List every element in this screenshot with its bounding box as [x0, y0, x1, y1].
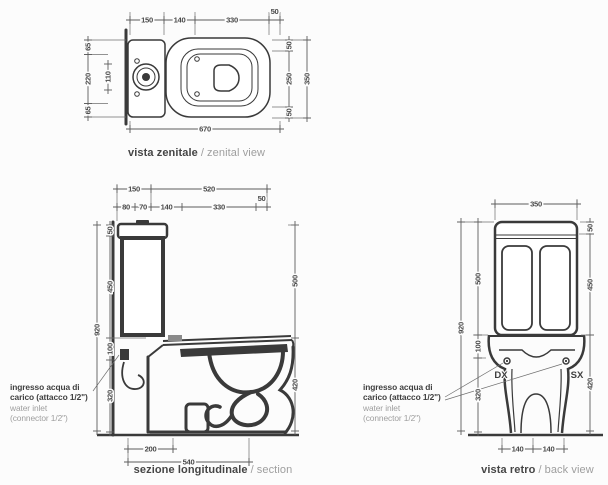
caption-section-italian: sezione longitudinale: [134, 464, 248, 476]
technical-drawing: 150 140 330 50 670 65 220 65 110 50 250 …: [0, 0, 608, 485]
caption-zenital-view: vista zenitale/zenital view: [128, 147, 265, 159]
dim-zenital-total-depth: 670: [199, 125, 211, 134]
inlet-label-en-line1: water inlet: [10, 403, 88, 413]
caption-back-view: vista retro/back view: [455, 464, 608, 476]
dim-zenital-button-offset: 110: [104, 71, 113, 82]
caption-zenital-english: zenital view: [207, 147, 265, 159]
inlet-label-it-line2: carico (attacco 1/2"): [10, 392, 88, 402]
dim-retro-left-0: 500: [474, 273, 483, 285]
dim-section-row2-4: 50: [258, 194, 266, 203]
bowl-inner-cut: [209, 351, 283, 392]
dim-zenital-top-0: 150: [141, 16, 153, 25]
dim-zenital-top-3: 50: [271, 7, 279, 16]
section-view-drawing: [93, 220, 299, 435]
dim-retro-right-1: 450: [586, 279, 595, 291]
label-dx: DX: [494, 370, 508, 381]
dim-zenital-left-1: 220: [84, 73, 93, 85]
dim-section-total-height: 920: [93, 324, 102, 336]
cistern-lid: [118, 224, 167, 238]
dim-retro-right-2: 420: [586, 378, 595, 390]
rim-section-cut: [180, 344, 288, 357]
inlet-label-en-line1: water inlet: [363, 403, 441, 413]
dim-section-left-1: 450: [106, 281, 115, 293]
dim-section-row1-1: 520: [203, 185, 215, 194]
float-pipe: [122, 362, 144, 389]
inlet-hole-dx-center: [506, 360, 508, 362]
dim-zenital-total-width: 350: [303, 73, 312, 85]
inlet-valve: [120, 349, 129, 360]
back-view-drawing: DX SX: [445, 222, 603, 435]
water-inlet-label-retro: ingresso acqua di carico (attacco 1/2") …: [363, 382, 441, 424]
dim-zenital-top-2: 330: [226, 16, 238, 25]
dim-section-left-3: 320: [106, 390, 115, 402]
technical-sheet-page: 150 140 330 50 670 65 220 65 110 50 250 …: [0, 0, 608, 485]
dim-section-bottom-0: 200: [145, 445, 157, 454]
cistern-body-cut: [122, 238, 163, 335]
dim-retro-width: 350: [530, 200, 542, 209]
inlet-label-it-line1: ingresso acqua di: [10, 382, 88, 392]
caption-section-english: section: [257, 464, 293, 476]
dim-retro-right-0: 50: [586, 224, 595, 232]
pedestal-inner-right: [558, 369, 561, 432]
caption-separator: /: [251, 464, 254, 476]
caption-retro-english: back view: [545, 464, 594, 476]
bowl-back-shelf: [499, 350, 575, 357]
inlet-label-it-line1: ingresso acqua di: [363, 382, 441, 392]
dim-retro-bottom-1: 140: [543, 445, 555, 454]
seat-hinge: [168, 335, 182, 341]
dim-zenital-top-1: 140: [174, 16, 186, 25]
bowl-back-top: [148, 345, 163, 357]
seat-outline: [166, 38, 270, 117]
dim-section-right-1: 420: [291, 379, 300, 391]
dim-retro-left-2: 320: [474, 389, 483, 401]
inlet-label-it-line2: carico (attacco 1/2"): [363, 392, 441, 402]
dim-zenital-left-0: 65: [84, 42, 93, 51]
dim-section-row2-0: 80: [122, 203, 130, 212]
dim-zenital-left-2: 65: [84, 106, 93, 115]
dim-retro-total-height: 920: [457, 322, 466, 334]
zenital-view-drawing: [126, 30, 270, 124]
pedestal-arch: [521, 394, 551, 433]
inlet-label-en-line2: (connector 1/2"): [363, 413, 441, 423]
dim-section-left-2: 100: [106, 343, 115, 355]
flush-button: [142, 73, 150, 81]
dim-section-row2-1: 70: [139, 203, 147, 212]
dim-retro-left-1: 100: [474, 341, 483, 353]
dim-section-row2-2: 140: [161, 203, 173, 212]
dim-section-row1-0: 150: [128, 185, 140, 194]
water-inlet-label-section: ingresso acqua di carico (attacco 1/2") …: [10, 382, 88, 424]
trap-curve: [232, 392, 267, 425]
dim-retro-bottom-0: 140: [512, 445, 524, 454]
inlet-label-en-line2: (connector 1/2"): [10, 413, 88, 423]
flush-button-side: [136, 220, 149, 225]
caption-separator: /: [201, 147, 204, 159]
dim-section-left-0: 50: [106, 227, 115, 235]
dim-zenital-right-1: 250: [285, 73, 294, 85]
label-sx: SX: [571, 370, 584, 381]
caption-separator: /: [538, 464, 541, 476]
dim-section-right-0: 500: [291, 275, 300, 287]
inlet-hole-sx-center: [565, 360, 567, 362]
dim-zenital-right-0: 50: [285, 42, 294, 50]
caption-zenital-italian: vista zenitale: [128, 147, 198, 159]
caption-section-view: sezione longitudinale/section: [113, 464, 313, 476]
caption-retro-italian: vista retro: [481, 464, 535, 476]
trap-hook: [206, 406, 232, 426]
dim-section-row2-3: 330: [213, 203, 225, 212]
dim-zenital-right-2: 50: [285, 109, 294, 117]
